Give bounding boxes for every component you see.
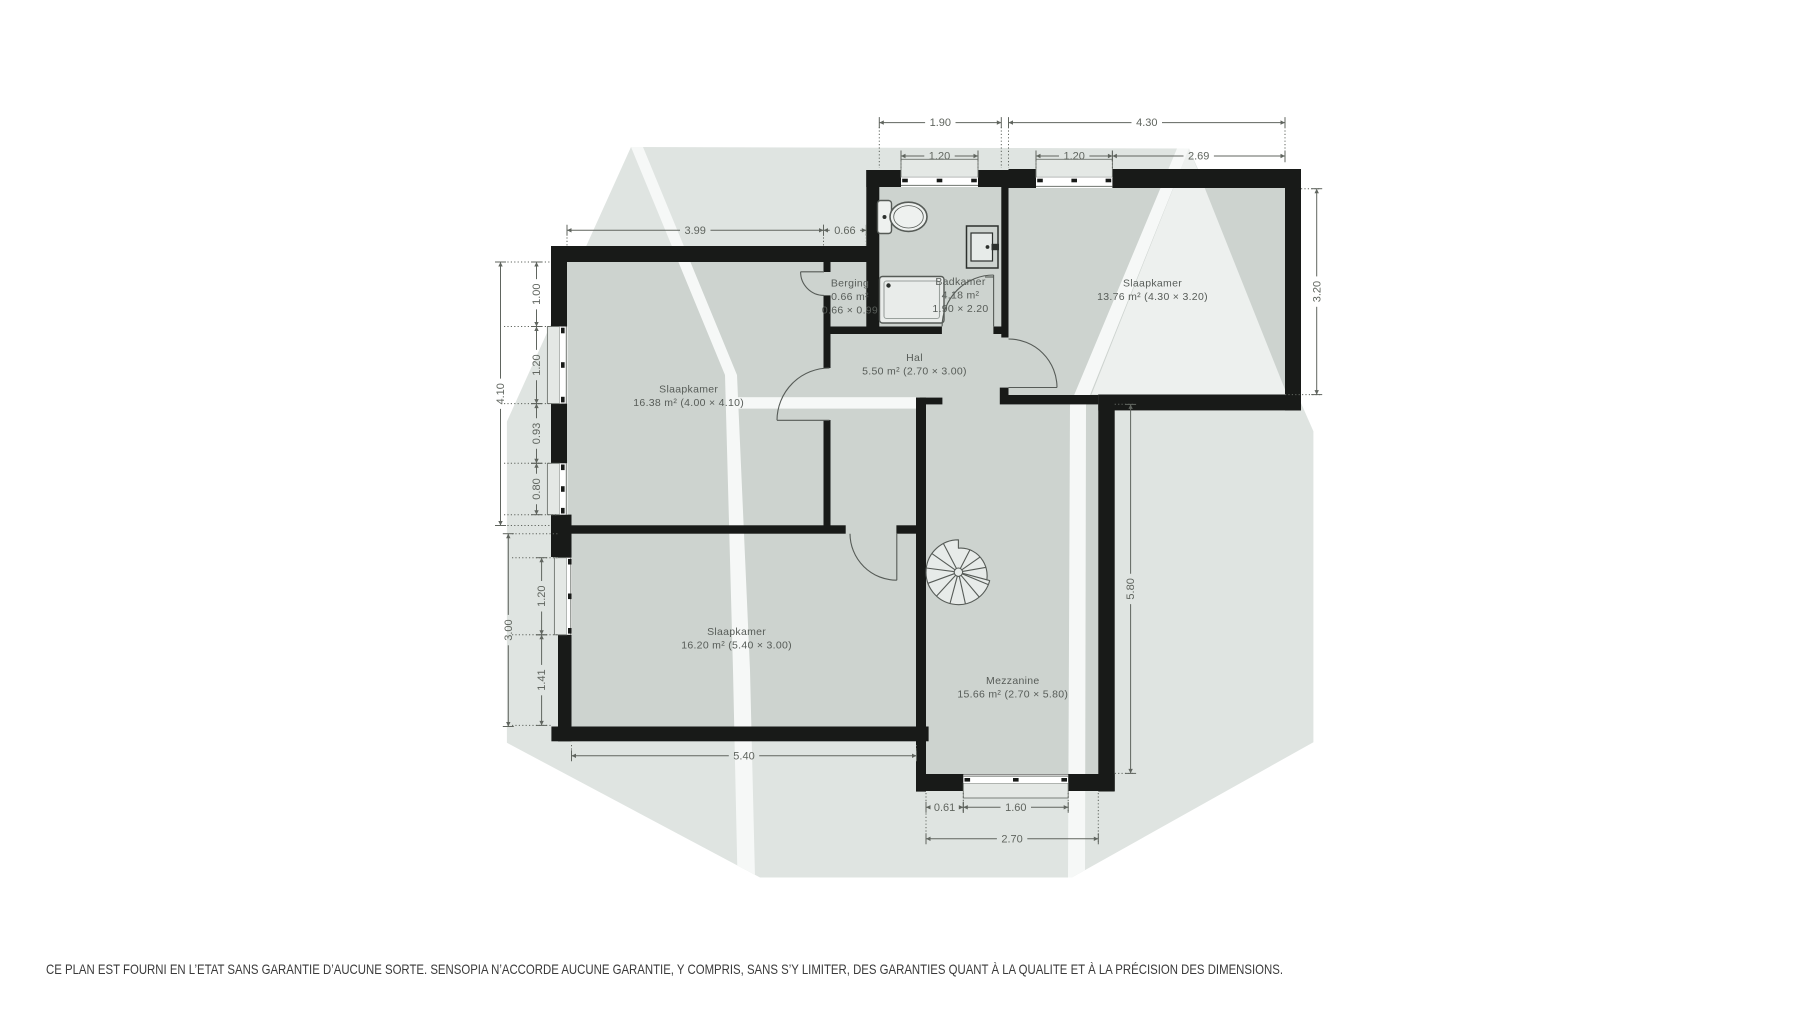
svg-text:16.20 m² (5.40 × 3.00): 16.20 m² (5.40 × 3.00): [681, 640, 792, 652]
svg-text:15.66 m² (2.70 × 5.80): 15.66 m² (2.70 × 5.80): [957, 689, 1068, 701]
svg-text:4.18 m²: 4.18 m²: [942, 289, 980, 301]
svg-text:3.20: 3.20: [1311, 281, 1323, 302]
svg-text:4.30: 4.30: [1136, 117, 1157, 129]
svg-text:1.00: 1.00: [531, 283, 543, 304]
svg-text:1.60: 1.60: [1005, 802, 1026, 814]
svg-text:Badkamer: Badkamer: [935, 276, 985, 288]
svg-text:3.00: 3.00: [503, 619, 515, 640]
svg-text:2.70: 2.70: [1001, 833, 1022, 845]
svg-text:Mezzanine: Mezzanine: [986, 675, 1039, 687]
svg-text:0.66 m²: 0.66 m²: [831, 291, 869, 303]
svg-text:2.69: 2.69: [1188, 151, 1209, 163]
svg-text:Slaapkamer: Slaapkamer: [707, 626, 766, 638]
svg-text:CE PLAN EST FOURNI EN L’ETAT S: CE PLAN EST FOURNI EN L’ETAT SANS GARANT…: [46, 961, 1283, 977]
svg-text:3.99: 3.99: [684, 225, 705, 237]
svg-text:0.61: 0.61: [934, 802, 955, 814]
svg-text:1.41: 1.41: [536, 669, 548, 690]
svg-text:Hal: Hal: [906, 352, 923, 364]
svg-text:1.20: 1.20: [929, 151, 950, 163]
svg-text:1.20: 1.20: [536, 585, 548, 606]
svg-text:0.66 × 0.99: 0.66 × 0.99: [822, 305, 878, 317]
svg-text:Slaapkamer: Slaapkamer: [659, 383, 718, 395]
svg-text:5.80: 5.80: [1125, 578, 1137, 599]
svg-text:1.20: 1.20: [531, 354, 543, 375]
svg-text:0.80: 0.80: [531, 478, 543, 499]
svg-text:13.76 m² (4.30 × 3.20): 13.76 m² (4.30 × 3.20): [1097, 291, 1208, 303]
svg-text:0.93: 0.93: [531, 423, 543, 444]
svg-text:0.66: 0.66: [834, 225, 855, 237]
svg-text:4.10: 4.10: [495, 383, 507, 404]
svg-text:Slaapkamer: Slaapkamer: [1123, 278, 1182, 290]
svg-text:5.40: 5.40: [733, 750, 754, 762]
svg-text:1.20: 1.20: [1063, 151, 1084, 163]
svg-text:Berging: Berging: [831, 278, 869, 290]
svg-text:5.50 m² (2.70 × 3.00): 5.50 m² (2.70 × 3.00): [862, 366, 967, 378]
svg-text:1.90 × 2.20: 1.90 × 2.20: [932, 303, 988, 315]
svg-text:16.38 m² (4.00 × 4.10): 16.38 m² (4.00 × 4.10): [633, 397, 744, 409]
svg-text:1.90: 1.90: [930, 117, 951, 129]
